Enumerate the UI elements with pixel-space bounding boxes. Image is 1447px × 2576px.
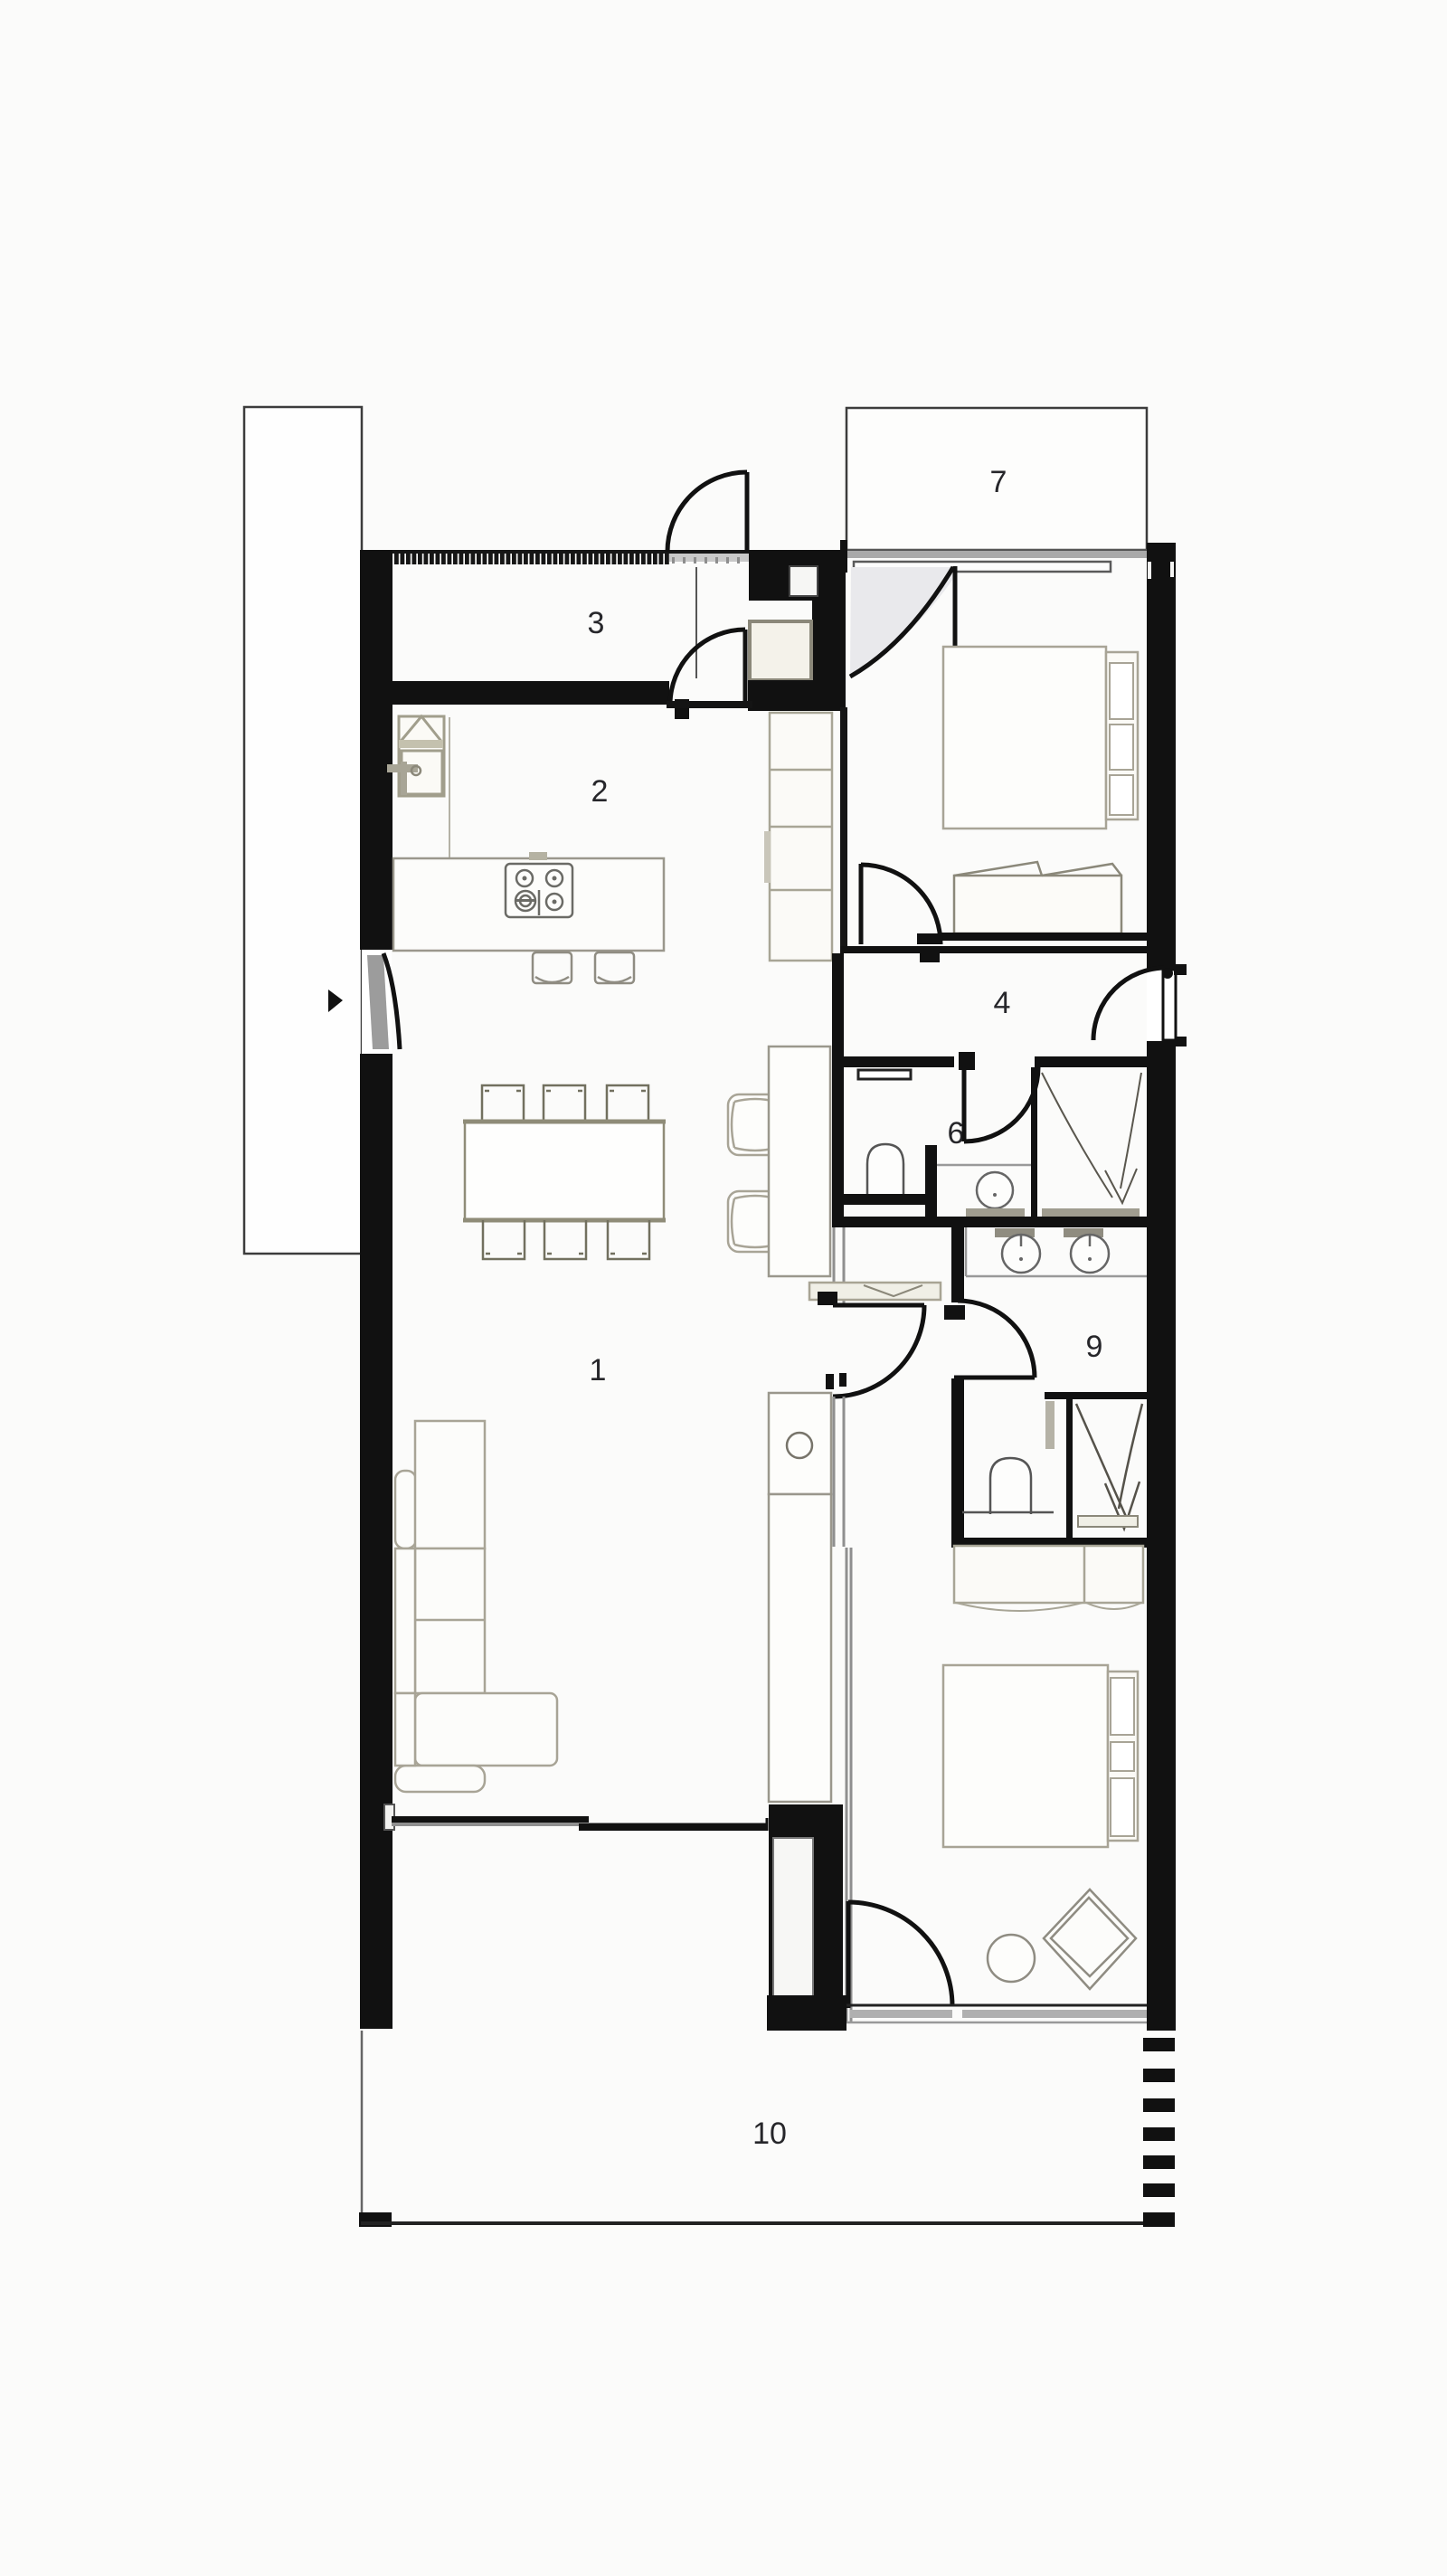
svg-text:9: 9 <box>1086 1330 1103 1364</box>
svg-text:3: 3 <box>588 606 605 640</box>
svg-text:10: 10 <box>752 2117 787 2151</box>
svg-text:7: 7 <box>990 465 1007 499</box>
svg-text:4: 4 <box>994 986 1011 1020</box>
svg-text:2: 2 <box>591 774 609 809</box>
svg-text:1: 1 <box>590 1353 607 1387</box>
